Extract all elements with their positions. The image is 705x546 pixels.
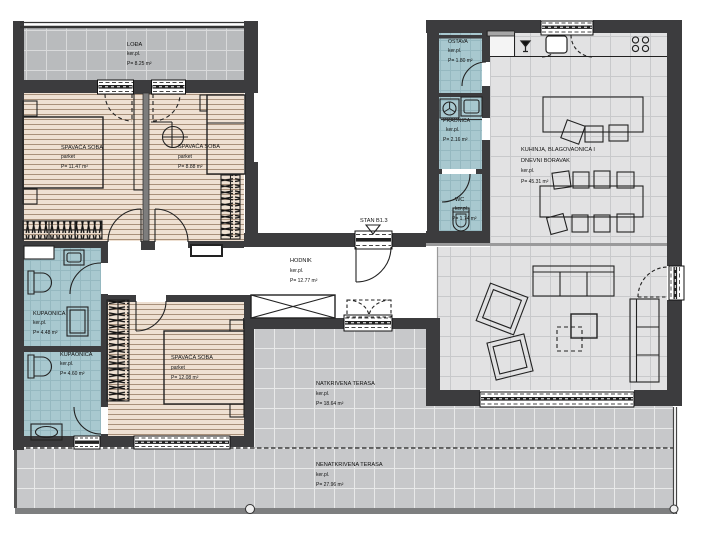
svg-text:P= 27.96 m²: P= 27.96 m² [316, 482, 344, 488]
svg-text:P= 8.88 m²: P= 8.88 m² [178, 164, 203, 170]
svg-text:KUHINJA, BLAGOVAONICA I: KUHINJA, BLAGOVAONICA I [521, 147, 595, 153]
svg-text:P= 18.64 m²: P= 18.64 m² [316, 401, 344, 407]
svg-text:SPAVAĆA SOBA: SPAVAĆA SOBA [178, 143, 220, 150]
svg-text:HODNIK: HODNIK [290, 258, 312, 264]
svg-text:parket: parket [171, 365, 186, 371]
svg-text:KUPAONICA: KUPAONICA [33, 311, 66, 317]
svg-text:ker.pl.: ker.pl. [316, 472, 329, 478]
svg-text:P= 1.74 m²: P= 1.74 m² [452, 216, 477, 222]
svg-text:NATKRIVENA TERASA: NATKRIVENA TERASA [316, 381, 375, 387]
svg-text:SPAVAĆA SOBA: SPAVAĆA SOBA [171, 354, 213, 361]
svg-text:ker.pl.: ker.pl. [448, 48, 461, 54]
svg-text:ker.pl.: ker.pl. [33, 320, 46, 326]
svg-text:P= 8.25 m²: P= 8.25 m² [127, 61, 152, 67]
svg-text:ker.pl.: ker.pl. [60, 361, 73, 367]
svg-text:ker.pl.: ker.pl. [455, 206, 468, 212]
svg-text:P= 1.80 m²: P= 1.80 m² [448, 58, 473, 64]
svg-text:ker.pl.: ker.pl. [446, 127, 459, 133]
svg-text:parket: parket [178, 154, 193, 160]
svg-text:ker.pl.: ker.pl. [316, 391, 329, 397]
svg-text:ker.pl.: ker.pl. [290, 268, 303, 274]
svg-text:P= 11.47 m²: P= 11.47 m² [61, 164, 88, 170]
svg-text:P= 12.77 m²: P= 12.77 m² [290, 278, 318, 284]
svg-text:parket: parket [61, 154, 76, 160]
svg-text:DNEVNI BORAVAK: DNEVNI BORAVAK [521, 158, 570, 164]
svg-text:NENATKRIVENA TERASA: NENATKRIVENA TERASA [316, 462, 383, 468]
svg-text:ker.pl.: ker.pl. [521, 168, 534, 174]
svg-text:P= 2.16 m²: P= 2.16 m² [443, 137, 468, 143]
svg-text:P= 45.31 m²: P= 45.31 m² [521, 179, 549, 185]
svg-text:P= 4.48 m²: P= 4.48 m² [33, 330, 58, 336]
svg-text:SPAVAĆA SOBA: SPAVAĆA SOBA [61, 144, 103, 151]
svg-text:P= 12.08 m²: P= 12.08 m² [171, 375, 199, 381]
svg-text:PRAONICA: PRAONICA [443, 118, 471, 124]
svg-text:OSTAVA: OSTAVA [448, 39, 468, 45]
svg-text:LOĐA: LOĐA [127, 42, 143, 48]
svg-text:P= 4.60 m²: P= 4.60 m² [60, 371, 85, 377]
svg-text:STAN B1.3: STAN B1.3 [360, 218, 388, 224]
svg-text:KUPAONICA: KUPAONICA [60, 352, 93, 358]
svg-text:WC: WC [455, 197, 464, 203]
svg-text:ker.pl.: ker.pl. [127, 51, 140, 57]
